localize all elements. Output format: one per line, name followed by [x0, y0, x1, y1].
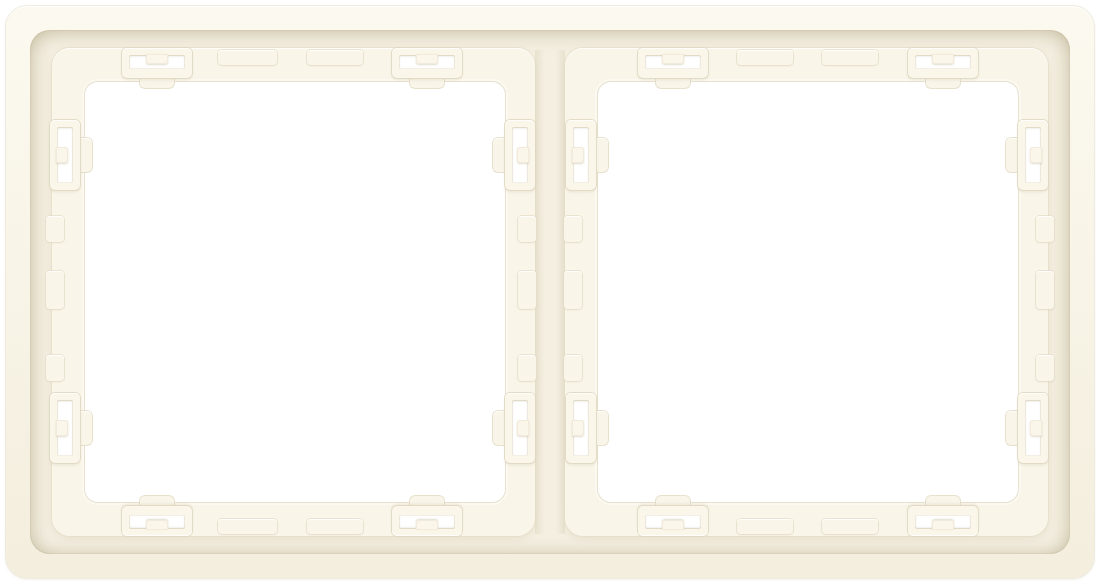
snap-clip-side [1002, 120, 1048, 190]
clip-cutout [399, 515, 455, 529]
rim-notch [1036, 355, 1054, 381]
clip-block [638, 48, 708, 78]
rim-notch [1036, 216, 1054, 242]
center-divider-channel [535, 50, 565, 534]
snap-clip-side [566, 120, 612, 190]
clip-block [908, 506, 978, 536]
clip-tab [146, 520, 168, 530]
clip-block [50, 393, 80, 463]
snap-clip-side [50, 120, 96, 190]
snap-clip-side [50, 393, 96, 463]
rim-notch [218, 50, 277, 65]
snap-clip-side [1002, 393, 1048, 463]
module-rim-right [565, 48, 1048, 536]
module-opening-left [85, 82, 505, 502]
snap-clip-bottom [908, 494, 978, 536]
snap-clip-top [638, 48, 708, 90]
clip-block [566, 120, 596, 190]
rim-notch [46, 355, 64, 381]
snap-clip-top [122, 48, 192, 90]
clip-tab [1030, 147, 1042, 163]
product-photo-2gang-frame [0, 0, 1100, 584]
clip-block [505, 393, 535, 463]
clip-block [638, 506, 708, 536]
clip-cutout [573, 127, 589, 183]
clip-tab [572, 420, 584, 436]
clip-block [122, 48, 192, 78]
snap-clip-bottom [122, 494, 192, 536]
clip-cutout [573, 400, 589, 456]
rim-notch [46, 216, 64, 242]
clip-cutout [645, 515, 701, 529]
clip-cutout [512, 400, 528, 456]
clip-cutout [399, 55, 455, 69]
clip-cutout [57, 127, 73, 183]
clip-tab [662, 520, 684, 530]
clip-tab [932, 520, 954, 530]
clip-cutout [915, 55, 971, 69]
snap-clip-top [908, 48, 978, 90]
rim-notch [822, 50, 878, 65]
clip-block [122, 506, 192, 536]
rim-notch [46, 271, 64, 309]
snap-clip-side [489, 120, 535, 190]
rim-notch [307, 519, 363, 534]
rim-notch [518, 216, 536, 242]
clip-block [566, 393, 596, 463]
clip-cutout [645, 55, 701, 69]
rim-notch [564, 271, 582, 309]
clip-cutout [1025, 127, 1041, 183]
clip-cutout [57, 400, 73, 456]
clip-block [392, 506, 462, 536]
rim-notch [307, 50, 363, 65]
clip-tab [56, 147, 68, 163]
clip-tab [146, 54, 168, 64]
clip-tab [932, 54, 954, 64]
clip-tab [662, 54, 684, 64]
clip-tab [56, 420, 68, 436]
snap-clip-side [489, 393, 535, 463]
clip-cutout [512, 127, 528, 183]
snap-clip-bottom [638, 494, 708, 536]
clip-tab [517, 420, 529, 436]
clip-block [1018, 120, 1048, 190]
snap-clip-side [566, 393, 612, 463]
clip-block [50, 120, 80, 190]
rim-notch [1036, 271, 1054, 309]
rim-notch [737, 519, 793, 534]
clip-tab [1030, 420, 1042, 436]
snap-clip-top [392, 48, 462, 90]
clip-block [392, 48, 462, 78]
rim-notch [564, 216, 582, 242]
clip-cutout [129, 515, 185, 529]
module-opening-right [598, 82, 1018, 502]
rim-notch [218, 519, 277, 534]
snap-clip-bottom [392, 494, 462, 536]
clip-block [908, 48, 978, 78]
clip-block [505, 120, 535, 190]
rim-notch [564, 355, 582, 381]
clip-cutout [129, 55, 185, 69]
rim-notch [518, 355, 536, 381]
rim-notch [822, 519, 878, 534]
clip-cutout [915, 515, 971, 529]
clip-tab [572, 147, 584, 163]
clip-tab [416, 520, 438, 530]
rim-notch [737, 50, 793, 65]
clip-tab [517, 147, 529, 163]
module-rim-left [52, 48, 535, 536]
rim-notch [518, 271, 536, 309]
clip-cutout [1025, 400, 1041, 456]
clip-block [1018, 393, 1048, 463]
clip-tab [416, 54, 438, 64]
